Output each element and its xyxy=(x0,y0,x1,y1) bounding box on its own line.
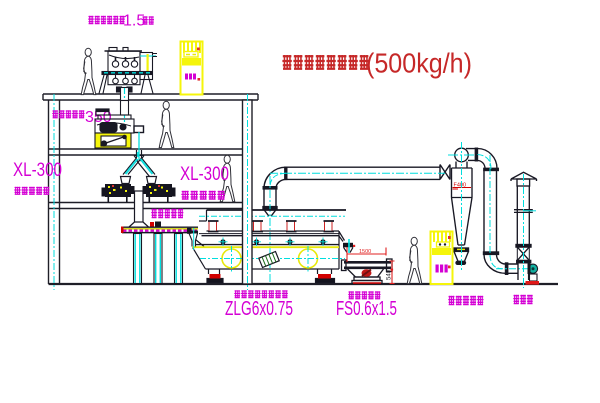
svg-text:(500kg/h): (500kg/h) xyxy=(366,48,472,79)
svg-text:ZLG6x0.75: ZLG6x0.75 xyxy=(225,298,293,320)
svg-text:FS0.6x1.5: FS0.6x1.5 xyxy=(336,298,397,320)
svg-text:1.5: 1.5 xyxy=(123,13,145,30)
svg-text:540: 540 xyxy=(387,269,393,280)
svg-text:XL-300: XL-300 xyxy=(180,164,229,185)
svg-text:F400: F400 xyxy=(454,183,467,189)
svg-text:XL-300: XL-300 xyxy=(13,160,62,181)
svg-text:1500: 1500 xyxy=(359,249,371,255)
